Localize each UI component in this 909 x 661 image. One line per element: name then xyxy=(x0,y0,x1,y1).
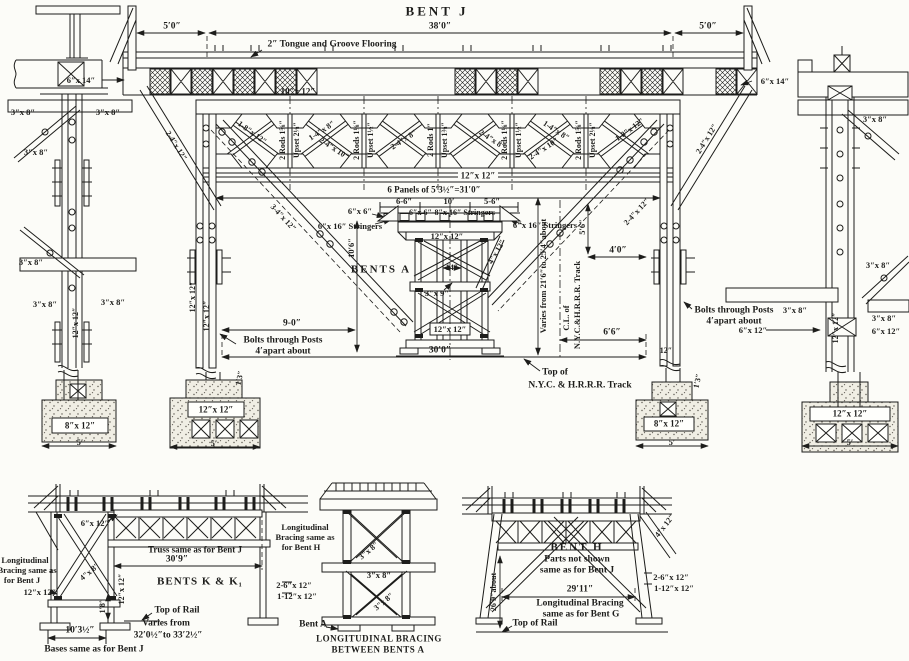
ldc-3x8-f: 3″x 8″ xyxy=(101,298,125,307)
ldc-foot-8x12: 8″x 12″ xyxy=(65,422,95,431)
dim-5-0-left: 5′0″ xyxy=(163,22,180,32)
ldc-3x8-b: 3″x 8″ xyxy=(96,108,120,117)
bl-12x12-post: 12″x 12″ xyxy=(118,574,126,605)
br-note-2: same as for Bent J xyxy=(540,566,614,576)
foot-left-12x12: 12″x 12″ xyxy=(199,406,234,415)
cl-track: N.Y.C.&H.R.R.R. Track xyxy=(573,261,582,349)
bm-bent-a: Bent A xyxy=(299,620,327,630)
rdc-foot-12x12: 12″x 12″ xyxy=(833,410,868,419)
chord-12x12: 12″x 12″ xyxy=(461,172,496,181)
tower-12x12-top: 12″x 12″ xyxy=(431,232,464,241)
bl-longbrace-3: for Bent J xyxy=(4,576,40,585)
flooring-note: 2″ Tongue and Groove Flooring xyxy=(267,40,396,50)
bolts-left-1: Bolts through Posts xyxy=(243,336,322,346)
bm-3x8-1: 3″x 8″ xyxy=(358,541,381,562)
bl-top-of-rail: Top of Rail xyxy=(154,606,199,616)
foot-left-1-3: 1′3″ xyxy=(235,370,246,386)
bl-4x8: 4″x 8″ xyxy=(79,562,102,583)
upset-5: Upset 2⅛″ xyxy=(589,122,597,158)
beam-6x14-right: 6″x 14″ xyxy=(761,77,790,86)
ldc-3x8-a: 3″x 8″ xyxy=(11,108,35,117)
bm-longbrace-1: Longitudinal xyxy=(281,523,328,532)
dim-30-0: 30′0″ xyxy=(429,346,451,356)
brace-3x9: 3″x 9″ xyxy=(425,289,449,298)
br-2-6x12: 2-6″x 12″ xyxy=(653,573,689,582)
dim-6-6: 6-6″ xyxy=(396,197,412,206)
bents-a-title: BENTS A xyxy=(351,265,411,276)
ldc-foot-5: 5′ xyxy=(77,438,84,447)
br-dim-26-9: 26′9″about xyxy=(490,573,498,611)
diag-p2-b: 2-4″x 10″ xyxy=(318,137,350,162)
br-top-of-rail: Top of Rail xyxy=(512,619,557,629)
six-by-six: 6″x 6″ xyxy=(348,207,372,216)
varies-track: Varies from 21′6″to 25′4″about xyxy=(539,219,548,334)
bm-caption-2: BETWEEN BENTS A xyxy=(331,646,424,655)
foot-right-5: 5′ xyxy=(669,438,676,447)
tower-12x12-sill: 12″x 12″ xyxy=(434,325,467,334)
ldc-3x8-e: 3″x 8″ xyxy=(33,300,57,309)
rdc-3x8-c: 3″x 8″ xyxy=(783,306,807,315)
bl-bases-note: Bases same as for Bent J xyxy=(44,645,143,655)
ldc-3x8-d: 3″x 8″ xyxy=(19,258,43,267)
batter-left: 2-4″x 12″ xyxy=(164,130,189,163)
cl-of: C.L. of xyxy=(562,305,571,330)
post-12x12-b: 12″x 12″ xyxy=(203,301,211,332)
beam-6x14-left: 6″x 14″ xyxy=(67,76,96,85)
bl-1-12x12: 1-12″x 12″ xyxy=(277,592,317,601)
dim-14: 14″ xyxy=(446,264,458,272)
upset-2: Upset 1½″ xyxy=(367,122,375,158)
dim-10ft: 10′ xyxy=(444,197,455,206)
diag-p5-b: 2-4″x 10″ xyxy=(528,137,560,162)
tower-4x12: 4″x 12″ xyxy=(487,238,507,265)
br-longbrace-1: Longitudinal Bracing xyxy=(536,599,623,609)
bl-varies-2: 32′0½″to 33′2½″ xyxy=(134,631,203,641)
bl-varies-1: Varies from xyxy=(142,619,190,629)
rdc-3x8-a: 3″x 8″ xyxy=(863,115,887,124)
rdc-3x8-d: 3″x 8″ xyxy=(872,314,896,323)
bm-3x8-3: 3″x 8″ xyxy=(373,592,396,613)
stringers-left: 6″x 16″ Stringers xyxy=(318,222,382,231)
bm-3x8-2: 3″x 8″ xyxy=(367,571,391,580)
bolts-right-1: Bolts through Posts xyxy=(694,306,773,316)
br-title: BENT H xyxy=(550,543,603,554)
bl-truss-note: Truss same as for Bent J xyxy=(148,546,242,555)
upset-3: Upset 1⅜″ xyxy=(441,122,449,158)
foot-right-8x12: 8″x 12″ xyxy=(654,420,684,429)
batter-right: 2-4″x 12″ xyxy=(695,123,720,156)
top-of-track-2: N.Y.C. & H.R.R.R. Track xyxy=(528,381,631,391)
bl-longbrace-1: Longitudinal xyxy=(1,556,48,565)
bl-2-6x12: 2-6″x 12″ xyxy=(276,581,312,590)
upset-1: Upset 2⅛″ xyxy=(293,122,301,158)
dim-5-0-right: 5′0″ xyxy=(699,22,716,32)
rod-3: 2 Rods 1″ xyxy=(427,123,435,157)
rdc-foot-5: 5′ xyxy=(847,438,854,447)
rod-5: 2 Rods 1⅝″ xyxy=(575,120,583,160)
cap-10x12: 10″x 12″ xyxy=(281,88,316,97)
foot-left-5: 5′ xyxy=(211,439,218,448)
dim-38-0: 38′0″ xyxy=(429,22,451,32)
bl-longbrace-2: Bracing same as xyxy=(0,566,57,575)
bl-6x12: 6″x 12″ xyxy=(81,519,110,528)
foot-right-1-3: 1′3″ xyxy=(693,373,704,389)
rdc-12x12: 12″x 12″ xyxy=(832,313,840,344)
diag-p3: 2-4″x 8″ xyxy=(389,129,418,152)
dim-9-0: 9-0″ xyxy=(283,319,301,329)
dim-5-6s: 5-6″ xyxy=(484,197,500,206)
top-of-track-1: Top of xyxy=(542,368,568,378)
br-dim-29-11: 29′11″ xyxy=(567,585,593,595)
bm-caption-1: LONGITUDINAL BRACING xyxy=(316,635,442,644)
br-1-12x12: 1-12″x 12″ xyxy=(654,584,694,593)
upset-4: Upset 1½″ xyxy=(515,122,523,158)
diag-end-left: 1-8″x 12″ xyxy=(236,120,268,146)
ldc-12x12: 12″x 12″ xyxy=(72,308,80,339)
br-4x12: 4″x 12″ xyxy=(654,513,677,539)
panels-note: 6 Panels of 5′3½″=31′0″ xyxy=(387,186,480,195)
trestle-drawing-sheet: BENT J5′0″38′0″5′0″2″ Tongue and Groove … xyxy=(0,0,909,661)
long-diag-right: 2-4″x 12″ xyxy=(623,197,652,227)
bm-longbrace-2: Bracing same as xyxy=(275,533,334,542)
bm-longbrace-3: for Bent H xyxy=(282,543,321,552)
bolts-left-2: 4′apart about xyxy=(255,347,310,357)
rod-1: 2 Rods 1⅝″ xyxy=(279,120,287,160)
bl-dim-10-3: 10′3½″ xyxy=(65,626,94,636)
bl-12x12-left: 12″x 12″ xyxy=(24,588,57,597)
diag-end-right: 1-8″x 12″ xyxy=(614,117,646,143)
br-note-1: Parts not shown xyxy=(544,555,609,565)
rdc-6x12-left: 6″x 12″ xyxy=(739,326,768,335)
long-diag-left: 3-4″x 12″ xyxy=(269,203,298,233)
bl-dim-30-9: 30′9″ xyxy=(166,555,188,565)
bl-dim-1-8: 1′8″ xyxy=(99,599,107,614)
dim-5-6v: 5′6″ xyxy=(578,219,587,235)
ldc-3x8-c: 3″x 8″ xyxy=(24,148,48,157)
post-12x12-a: 12″x 12″ xyxy=(189,282,197,313)
title-bent-j: BENT J xyxy=(406,5,469,18)
post-base-12: 12″ xyxy=(660,347,672,355)
stringers-cap: 6″x 6″-8″x 16″ Stringers xyxy=(409,209,495,217)
dim-4-0: 4′0″ xyxy=(609,246,626,256)
rdc-3x8-b: 3″x 8″ xyxy=(866,261,890,270)
dim-6-6b: 6′6″ xyxy=(603,328,620,338)
rdc-6x12-right: 6″x 12″ xyxy=(872,327,901,336)
annotation-layer: BENT J5′0″38′0″5′0″2″ Tongue and Groove … xyxy=(0,0,909,661)
rod-2: 2 Rods 1⅛″ xyxy=(353,120,361,160)
bl-title: BENTS K & K₁ xyxy=(157,577,243,588)
dim-10-6: 10′6″ xyxy=(347,238,356,258)
